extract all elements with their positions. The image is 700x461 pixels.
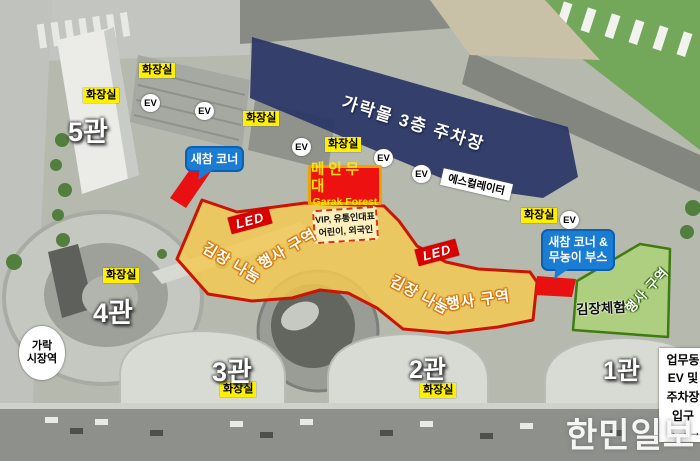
snack-booth-bubble: 새참 코너 & 무농이 부스 [541, 229, 615, 271]
toilet-label: 화장실 [325, 137, 361, 152]
main-stage-box: 메인무대 Garak Forest [308, 165, 382, 205]
snack-corner-text: 새참 코너 [191, 152, 239, 167]
office-line2: EV 및 [668, 369, 698, 386]
toilet-label: 화장실 [243, 111, 279, 126]
elevator-badge: EV [560, 211, 579, 229]
toilet-label: 화장실 [83, 88, 119, 103]
office-line3: 주차장 [666, 388, 699, 405]
toilet-label: 화장실 [521, 208, 557, 223]
elevator-badge: EV [292, 138, 311, 156]
hall-3-label: 3관 [212, 350, 252, 389]
newspaper-watermark: 한민일보 [566, 408, 695, 457]
snack-booth-line1: 새참 코너 & [548, 235, 608, 250]
snack-booth-line2: 무농이 부스 [549, 250, 608, 265]
hall-1-label: 1관 [603, 351, 640, 387]
bubble-tail [554, 266, 570, 281]
hall-4-label: 4관 [93, 291, 133, 330]
event-map: 가락몰 3층 주차장 화장실 화장실 화장실 화장실 화장실 화장실 화장실 화… [0, 0, 700, 461]
toilet-label: 화장실 [139, 63, 175, 78]
office-line1: 업무동 [666, 351, 699, 368]
hall-5-label: 5관 [68, 110, 108, 149]
bubble-tail [198, 167, 214, 182]
station-line1: 가락 [32, 340, 52, 353]
toilet-label: 화장실 [103, 268, 139, 283]
snack-corner-bubble: 새참 코너 [185, 146, 244, 172]
hall-2-label: 2관 [409, 350, 446, 386]
elevator-badge: EV [412, 165, 431, 183]
elevator-badge: EV [141, 94, 160, 112]
garak-market-station-label: 가락 시장역 [19, 326, 65, 380]
main-stage-title: 메인무대 [311, 162, 379, 195]
station-line2: 시장역 [27, 353, 57, 366]
vip-line2: 어린이, 외국인 [318, 223, 373, 240]
elevator-badge: EV [195, 102, 214, 120]
